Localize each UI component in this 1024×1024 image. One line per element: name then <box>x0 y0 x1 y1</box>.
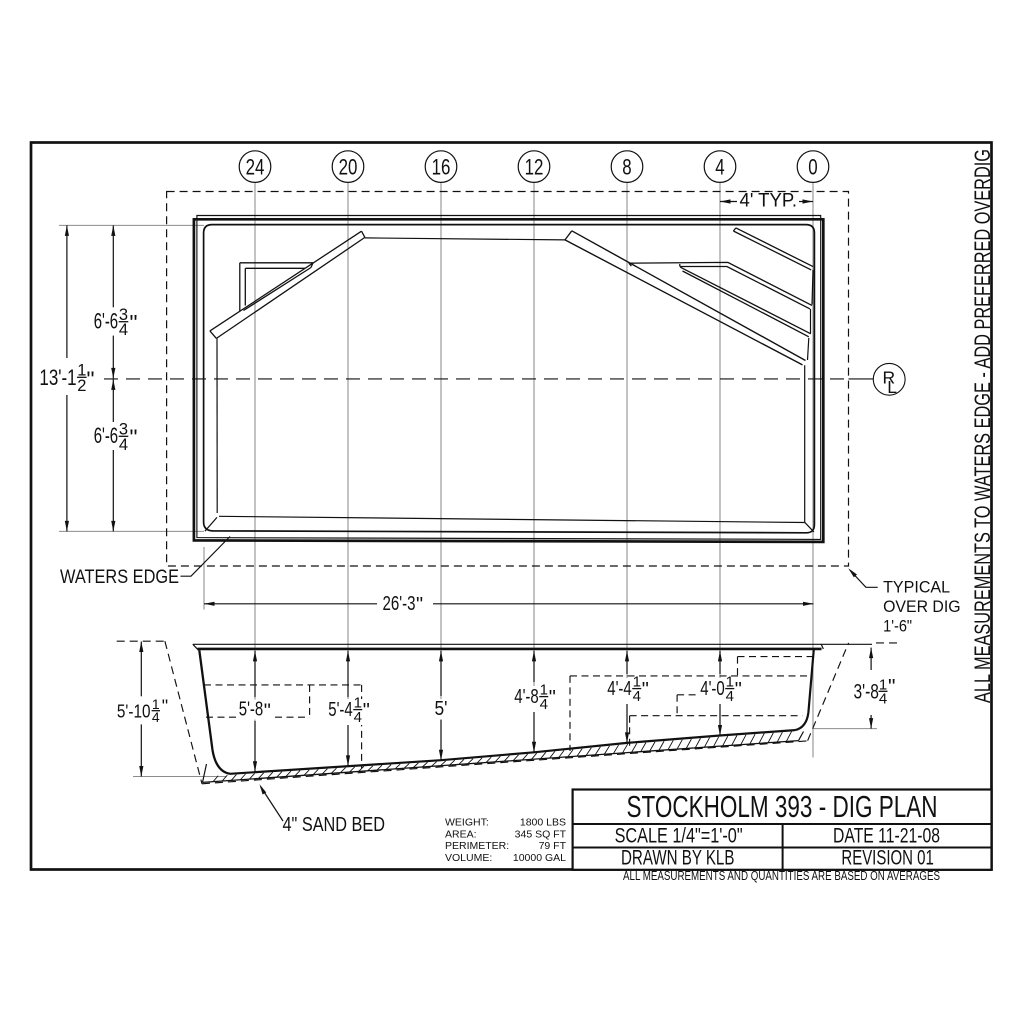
svg-text:12: 12 <box>525 155 544 180</box>
svg-text:TYPICAL: TYPICAL <box>883 578 950 597</box>
svg-text:STOCKHOLM 393 - DIG PLAN: STOCKHOLM 393 - DIG PLAN <box>627 789 938 824</box>
svg-text:WEIGHT:: WEIGHT: <box>445 817 489 829</box>
svg-text:": " <box>130 425 138 450</box>
svg-text:": " <box>363 700 370 722</box>
svg-text:6'-6: 6'-6 <box>94 308 118 333</box>
svg-text:5'-8: 5'-8 <box>239 699 264 721</box>
svg-text:2: 2 <box>77 377 86 395</box>
svg-text:ALL MEASUREMENTS TO WATERS EDG: ALL MEASUREMENTS TO WATERS EDGE - ADD PR… <box>970 149 995 703</box>
svg-text:4: 4 <box>633 688 641 705</box>
svg-text:1800 LBS: 1800 LBS <box>520 817 566 829</box>
svg-text:": " <box>416 594 423 616</box>
svg-text:4: 4 <box>540 696 548 713</box>
svg-text:": " <box>130 310 138 335</box>
svg-text:PERIMETER:: PERIMETER: <box>445 840 509 852</box>
svg-text:4: 4 <box>715 155 724 180</box>
svg-text:AREA:: AREA: <box>445 828 477 840</box>
svg-text:0: 0 <box>808 155 817 180</box>
svg-text:4: 4 <box>152 709 160 725</box>
svg-text:DRAWN BY KLB: DRAWN BY KLB <box>621 847 734 870</box>
svg-text:L: L <box>887 377 897 397</box>
svg-text:6'-6: 6'-6 <box>94 423 118 448</box>
svg-text:4: 4 <box>879 691 887 708</box>
svg-text:": " <box>264 701 271 723</box>
svg-text:16: 16 <box>432 155 451 180</box>
svg-text:4' TYP.: 4' TYP. <box>740 190 798 212</box>
svg-text:5'-10: 5'-10 <box>117 702 151 722</box>
svg-text:4: 4 <box>119 436 128 454</box>
svg-text:OVER DIG: OVER DIG <box>883 597 961 616</box>
svg-text:": " <box>642 679 649 701</box>
svg-text:": " <box>87 367 95 392</box>
svg-text:8: 8 <box>622 155 631 180</box>
svg-text:": " <box>735 679 742 701</box>
svg-text:4'-0: 4'-0 <box>700 678 725 700</box>
svg-text:1'-6": 1'-6" <box>883 617 912 636</box>
svg-text:": " <box>162 697 168 717</box>
svg-text:4: 4 <box>726 688 734 705</box>
svg-text:13'-1: 13'-1 <box>39 365 76 390</box>
svg-text:20: 20 <box>339 155 358 180</box>
svg-text:4'-4: 4'-4 <box>607 678 632 700</box>
svg-text:26'-3: 26'-3 <box>383 593 416 615</box>
svg-text:5': 5' <box>435 698 448 720</box>
svg-text:4" SAND BED: 4" SAND BED <box>283 814 386 836</box>
svg-text:4: 4 <box>119 321 128 339</box>
svg-text:": " <box>549 687 556 709</box>
svg-text:345 SQ FT: 345 SQ FT <box>515 828 567 840</box>
svg-text:VOLUME:: VOLUME: <box>445 852 492 864</box>
svg-text:5'-4: 5'-4 <box>328 699 353 721</box>
svg-text:4'-8: 4'-8 <box>514 686 539 708</box>
svg-text:4: 4 <box>354 709 362 726</box>
svg-text:SCALE 1/4"=1'-0": SCALE 1/4"=1'-0" <box>615 825 743 848</box>
svg-text:": " <box>888 676 895 699</box>
svg-text:10000 GAL: 10000 GAL <box>513 852 566 864</box>
svg-text:DATE 11-21-08: DATE 11-21-08 <box>833 825 940 848</box>
svg-text:3'-8: 3'-8 <box>854 680 879 703</box>
svg-text:24: 24 <box>246 155 265 180</box>
svg-text:79 FT: 79 FT <box>539 840 567 852</box>
svg-text:REVISION 01: REVISION 01 <box>841 847 933 870</box>
svg-text:ALL MEASUREMENTS AND QUANTITIE: ALL MEASUREMENTS AND QUANTITIES ARE BASE… <box>623 869 940 883</box>
svg-text:WATERS EDGE: WATERS EDGE <box>60 567 179 588</box>
